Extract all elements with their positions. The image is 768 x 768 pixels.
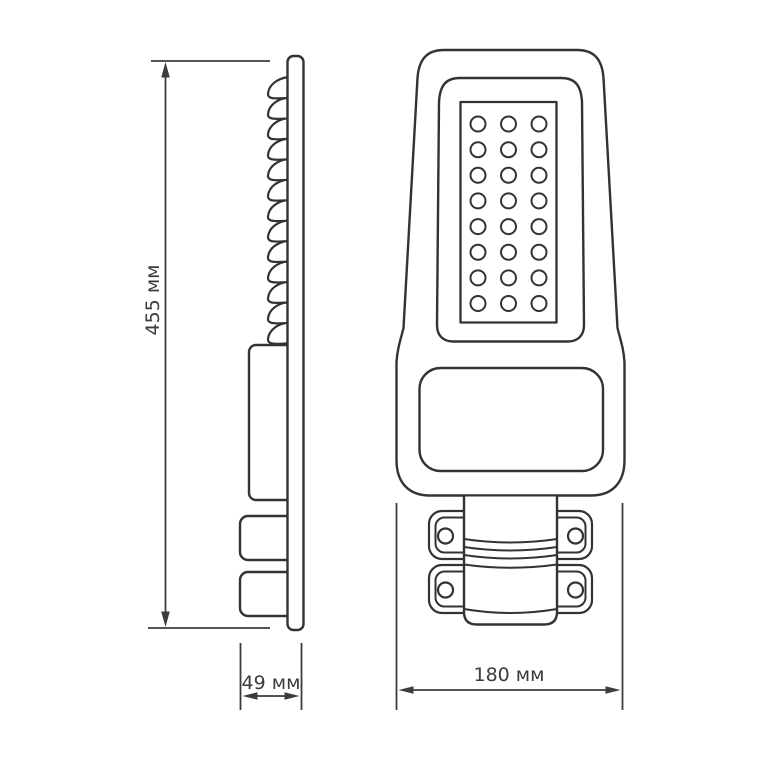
- led-lens: [501, 219, 516, 234]
- led-lens: [532, 296, 547, 311]
- depth-label: 49 мм: [242, 672, 301, 694]
- side-view: [240, 56, 304, 630]
- street-light-diagram: 455 мм 49 мм 180 мм: [0, 0, 768, 768]
- led-lens: [532, 245, 547, 260]
- led-lens: [501, 142, 516, 157]
- led-lens: [501, 245, 516, 260]
- lamp-body-side: [288, 56, 304, 630]
- led-lens: [532, 168, 547, 183]
- led-lens: [501, 296, 516, 311]
- height-label: 455 мм: [142, 265, 164, 336]
- led-lens: [532, 193, 547, 208]
- led-lens: [501, 270, 516, 285]
- led-lens: [532, 142, 547, 157]
- led-lens: [501, 117, 516, 132]
- heatsink-fin: [268, 282, 289, 303]
- heatsink-fins: [268, 77, 289, 344]
- front-view: [397, 50, 625, 625]
- led-lens: [532, 117, 547, 132]
- arrowhead-right: [606, 686, 621, 694]
- led-lens: [501, 193, 516, 208]
- led-lens: [532, 219, 547, 234]
- heatsink-fin: [268, 77, 289, 98]
- led-lens: [471, 245, 486, 260]
- led-array: [471, 117, 547, 312]
- heatsink-fin: [268, 138, 289, 159]
- led-lens: [471, 142, 486, 157]
- heatsink-fin: [268, 159, 289, 180]
- heatsink-fin: [268, 200, 289, 221]
- heatsink-fin: [268, 302, 289, 323]
- led-lens: [471, 193, 486, 208]
- heatsink-fin: [268, 220, 289, 241]
- heatsink-fin: [268, 241, 289, 262]
- led-lens: [501, 168, 516, 183]
- led-lens: [471, 219, 486, 234]
- led-lens: [471, 168, 486, 183]
- arrowhead-up: [161, 62, 170, 78]
- heatsink-fin: [268, 322, 289, 343]
- technical-drawing-page: 455 мм 49 мм 180 мм: [0, 0, 768, 768]
- mounting-bracket: [429, 497, 592, 625]
- width-label: 180 мм: [474, 664, 545, 686]
- heatsink-fin: [268, 179, 289, 200]
- pole-pipe: [464, 497, 557, 625]
- driver-cover-front: [420, 368, 604, 471]
- led-lens: [532, 270, 547, 285]
- dimension-depth: 49 мм: [241, 643, 302, 710]
- led-panel: [461, 102, 557, 323]
- arrowhead-down: [161, 612, 170, 628]
- heatsink-fin: [268, 118, 289, 139]
- led-lens: [471, 117, 486, 132]
- heatsink-fin: [268, 97, 289, 118]
- arrowhead-left: [399, 686, 414, 694]
- led-lens: [471, 270, 486, 285]
- heatsink-fin: [268, 261, 289, 282]
- led-lens: [471, 296, 486, 311]
